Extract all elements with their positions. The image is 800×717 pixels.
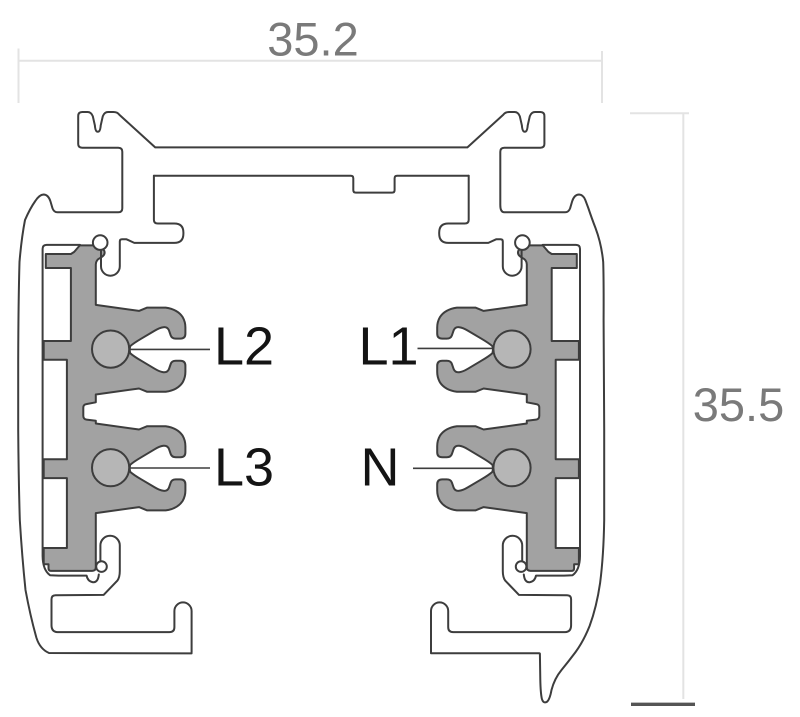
svg-text:L2: L2 [214, 317, 274, 377]
svg-text:L3: L3 [214, 438, 274, 498]
svg-text:N: N [361, 438, 400, 498]
svg-text:35.2: 35.2 [267, 13, 358, 66]
svg-text:35.5: 35.5 [693, 378, 784, 431]
svg-text:L1: L1 [359, 317, 419, 377]
